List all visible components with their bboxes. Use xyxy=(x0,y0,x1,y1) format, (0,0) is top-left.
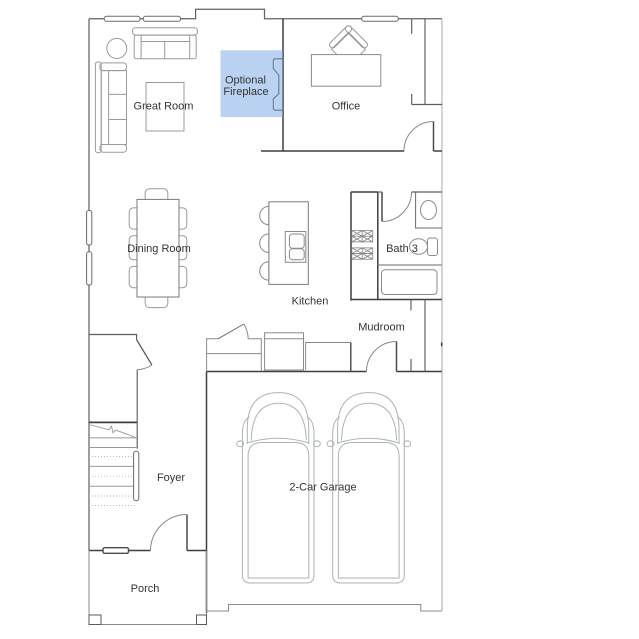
svg-text:Bath 3: Bath 3 xyxy=(386,243,418,255)
svg-text:Great Room: Great Room xyxy=(134,101,194,113)
svg-text:Optional: Optional xyxy=(225,75,266,87)
svg-text:2-Car Garage: 2-Car Garage xyxy=(289,482,356,494)
svg-text:Office: Office xyxy=(332,101,361,113)
svg-text:Dining Room: Dining Room xyxy=(127,243,191,255)
svg-text:Mudroom: Mudroom xyxy=(358,322,404,334)
svg-text:Fireplace: Fireplace xyxy=(223,86,268,98)
svg-text:Foyer: Foyer xyxy=(157,472,185,484)
svg-text:Porch: Porch xyxy=(131,583,160,595)
svg-text:Kitchen: Kitchen xyxy=(292,296,329,308)
